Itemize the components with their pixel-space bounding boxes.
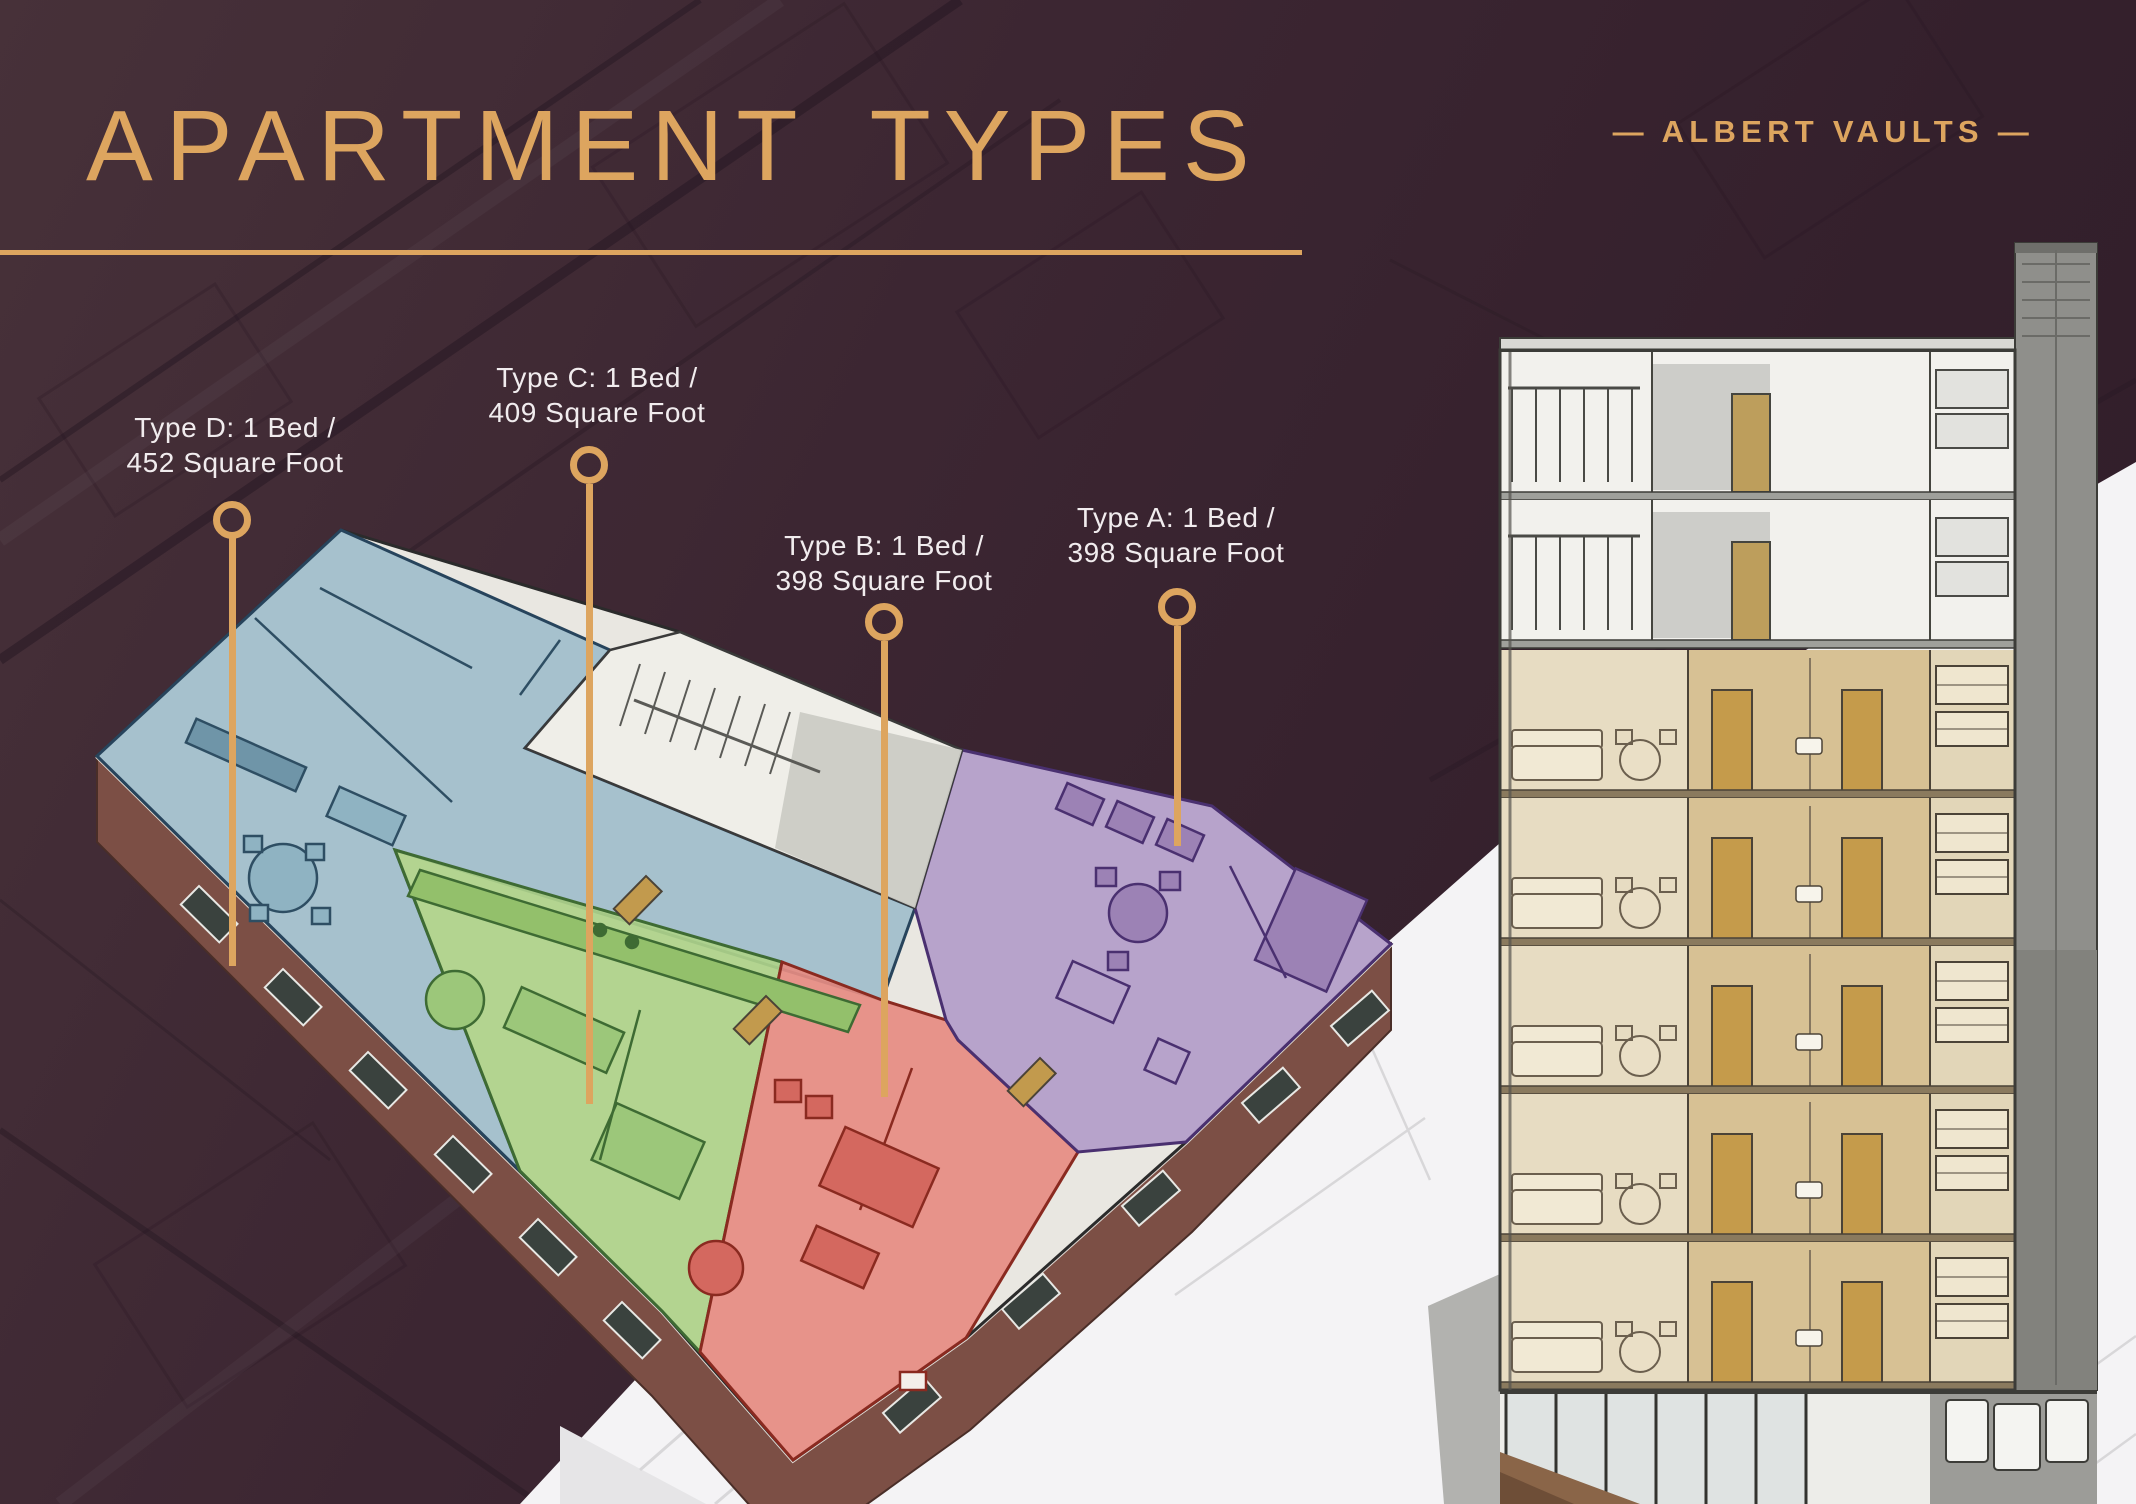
brand-logo: — ALBERT VAULTS —	[1613, 114, 2034, 150]
type-c-label-line1: Type C: 1 Bed /	[496, 362, 697, 393]
type-d-label: Type D: 1 Bed / 452 Square Foot	[65, 410, 405, 480]
section-ground-floor	[1500, 1390, 2097, 1504]
type-c-marker-ring	[570, 446, 608, 484]
type-d-label-line2: 452 Square Foot	[127, 447, 344, 478]
title-underline	[0, 250, 1302, 255]
slide-artwork	[0, 0, 2136, 1504]
type-a-label-line1: Type A: 1 Bed /	[1077, 502, 1275, 533]
type-d-marker-ring	[213, 501, 251, 539]
type-b-label-line2: 398 Square Foot	[776, 565, 993, 596]
building-section	[1428, 243, 2097, 1504]
slide-canvas: APARTMENT TYPES — ALBERT VAULTS — Type D…	[0, 0, 2136, 1504]
type-a-leader-line	[1174, 626, 1181, 846]
type-c-label-line2: 409 Square Foot	[489, 397, 706, 428]
type-d-label-line1: Type D: 1 Bed /	[134, 412, 335, 443]
type-c-leader-line	[586, 484, 593, 1104]
type-b-label: Type B: 1 Bed / 398 Square Foot	[714, 528, 1054, 598]
type-b-marker-ring	[865, 603, 903, 641]
page-title: APARTMENT TYPES	[86, 96, 1263, 196]
type-a-label: Type A: 1 Bed / 398 Square Foot	[1006, 500, 1346, 570]
type-c-label: Type C: 1 Bed / 409 Square Foot	[427, 360, 767, 430]
type-b-label-line1: Type B: 1 Bed /	[784, 530, 984, 561]
type-a-marker-ring	[1158, 588, 1196, 626]
type-d-leader-line	[229, 538, 236, 966]
type-b-leader-line	[881, 641, 888, 1097]
type-a-label-line2: 398 Square Foot	[1068, 537, 1285, 568]
